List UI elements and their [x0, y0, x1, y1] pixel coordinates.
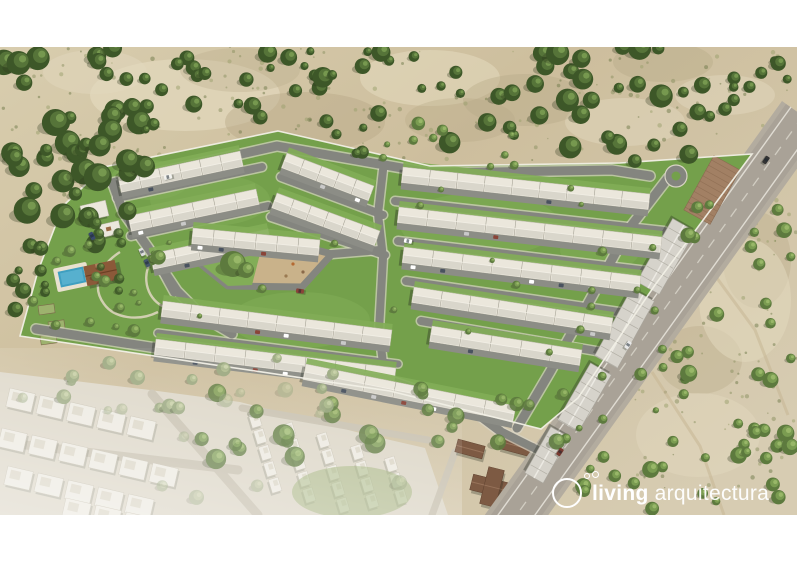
logo-circle-icon: [552, 478, 582, 508]
top-margin: [0, 0, 800, 47]
garden-bed: [38, 304, 55, 315]
logo-dot-icon: [592, 471, 599, 478]
aerial-site-plan-render: [0, 47, 797, 515]
internal-road: [332, 250, 380, 254]
living-arquitectura-logo: living arquitectura: [552, 477, 769, 509]
logo-word-living: living: [592, 483, 649, 504]
bottom-margin: [0, 515, 800, 565]
logo-word-arquitectura: arquitectura: [655, 483, 770, 504]
logo-dot-icon: [584, 473, 590, 479]
page: living arquitectura: [0, 0, 800, 565]
haze-overlay: [0, 348, 462, 515]
